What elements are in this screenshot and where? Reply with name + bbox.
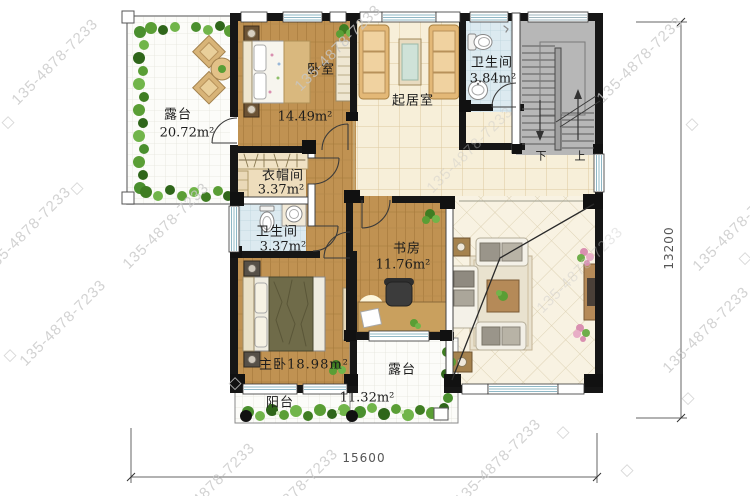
window-icon: [330, 12, 346, 22]
room-area-bathroom-mid: 3.37m²: [260, 241, 306, 254]
window-icon: [369, 331, 429, 341]
room-area-closet: 3.37m²: [258, 184, 304, 197]
window-icon: [462, 384, 488, 394]
door-opening: [230, 117, 238, 145]
window-icon: [436, 12, 460, 22]
window-icon: [241, 12, 267, 22]
floor-plan-image: 露台 20.72m² 卧室 14.49m² 起居室 卫生间 3.84m² 衣帽间…: [0, 0, 750, 496]
room-label-balcony: 阳台: [266, 397, 294, 410]
window-icon: [382, 12, 436, 22]
floor-plan-svg: [0, 0, 750, 496]
room-label-bathroom-top: 卫生间: [471, 57, 513, 70]
window-icon: [558, 384, 584, 394]
window-icon: [470, 12, 508, 22]
papers-icon: [361, 308, 382, 327]
room-area-terrace-s: 11.32m²: [340, 392, 395, 405]
balcony-column: [346, 410, 358, 422]
master-bed-icon: [243, 261, 325, 367]
window-icon: [594, 154, 604, 192]
room-label-master-bedroom: 主卧18.98m²: [259, 359, 349, 372]
window-icon: [229, 206, 239, 252]
room-label-bedroom: 卧室: [307, 64, 335, 77]
room-area-study: 11.76m²: [376, 259, 431, 272]
toilet-icon: [468, 34, 492, 50]
window-icon: [360, 12, 382, 22]
dimension-height-label: 13200: [662, 226, 676, 269]
room-label-terrace-s: 露台: [388, 364, 416, 377]
room-label-closet: 衣帽间: [262, 170, 304, 183]
window-icon: [243, 384, 297, 394]
room-label-study: 书房: [393, 243, 421, 256]
room-area-terrace-nw: 20.72m²: [160, 127, 215, 140]
stairs-down-label: 下: [536, 151, 547, 162]
window-icon: [283, 12, 322, 22]
stairs-up-label: 上: [575, 151, 586, 162]
room-area-bedroom: 14.49m²: [278, 111, 333, 124]
sink-icon: [282, 204, 306, 226]
stair-rail: [555, 48, 561, 150]
balcony-column: [240, 410, 252, 422]
room-area-bathroom-top: 3.84m²: [470, 73, 516, 86]
room-label-bathroom-mid: 卫生间: [256, 226, 298, 239]
sliding-door-icon: [488, 384, 558, 394]
window-icon: [528, 12, 588, 22]
dimension-width-label: 15600: [342, 451, 385, 465]
room-label-living-room: 起居室: [392, 95, 434, 108]
room-label-terrace-nw: 露台: [164, 109, 192, 122]
